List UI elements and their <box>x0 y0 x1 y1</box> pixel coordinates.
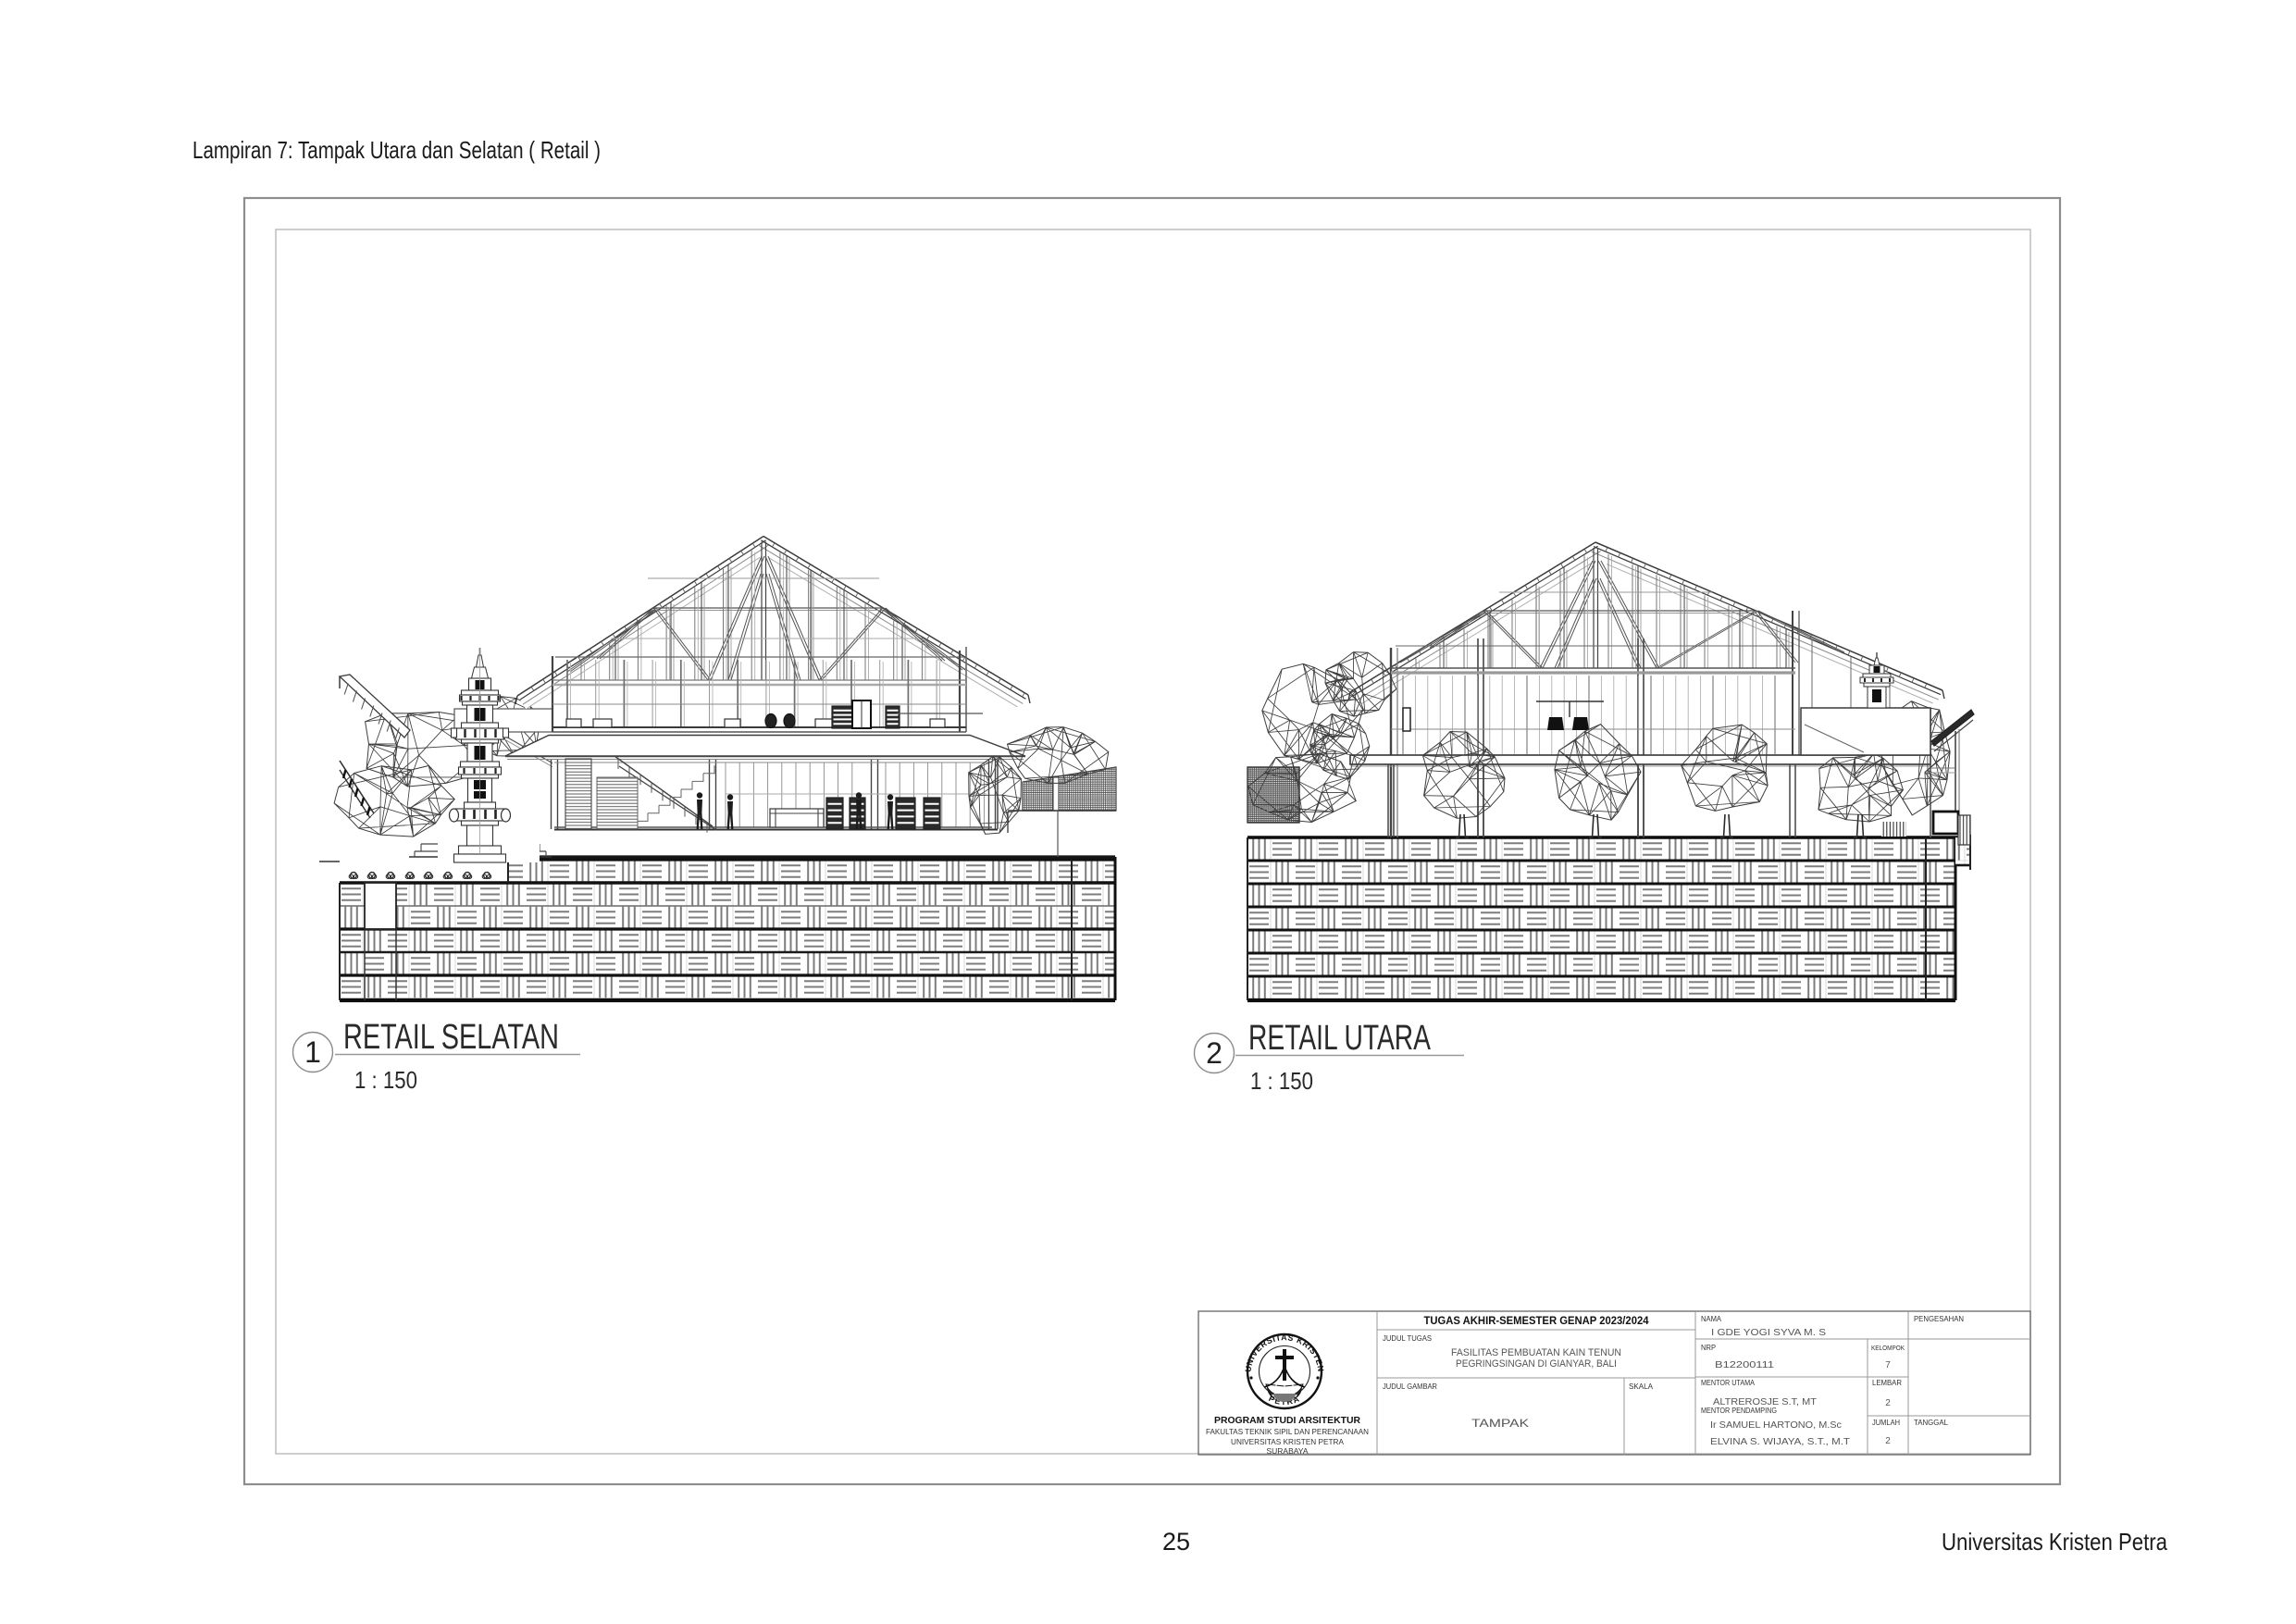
svg-text:TUGAS AKHIR-SEMESTER GENAP 202: TUGAS AKHIR-SEMESTER GENAP 2023/2024 <box>1424 1314 1649 1327</box>
svg-text:PROGRAM STUDI ARSITEKTUR: PROGRAM STUDI ARSITEKTUR <box>1214 1415 1360 1426</box>
svg-text:7: 7 <box>1885 1360 1891 1370</box>
svg-text:25: 25 <box>1162 1528 1190 1556</box>
svg-text:MENTOR UTAMA: MENTOR UTAMA <box>1701 1379 1756 1387</box>
svg-text:I GDE YOGI SYVA M. S: I GDE YOGI SYVA M. S <box>1711 1328 1826 1338</box>
svg-text:Universitas Kristen Petra: Universitas Kristen Petra <box>1942 1528 2167 1556</box>
svg-text:2: 2 <box>1885 1398 1891 1408</box>
svg-text:KELOMPOK: KELOMPOK <box>1871 1344 1905 1352</box>
svg-text:SKALA: SKALA <box>1629 1382 1654 1391</box>
svg-text:RETAIL UTARA: RETAIL UTARA <box>1248 1019 1431 1058</box>
svg-text:MENTOR PENDAMPING: MENTOR PENDAMPING <box>1701 1407 1777 1415</box>
svg-text:RETAIL SELATAN: RETAIL SELATAN <box>343 1018 559 1057</box>
svg-text:SURABAYA: SURABAYA <box>1267 1446 1309 1456</box>
svg-text:FAKULTAS TEKNIK SIPIL DAN PERE: FAKULTAS TEKNIK SIPIL DAN PERENCANAAN <box>1206 1427 1369 1436</box>
svg-text:1 : 150: 1 : 150 <box>354 1066 417 1094</box>
svg-text:PENGESAHAN: PENGESAHAN <box>1914 1315 1964 1323</box>
svg-text:Lampiran 7: Tampak Utara dan S: Lampiran 7: Tampak Utara dan Selatan ( R… <box>192 136 601 164</box>
svg-text:ELVINA S. WIJAYA, S.T., M.T: ELVINA S. WIJAYA, S.T., M.T <box>1710 1437 1850 1447</box>
svg-text:2: 2 <box>1206 1036 1222 1070</box>
svg-text:JUDUL GAMBAR: JUDUL GAMBAR <box>1383 1382 1437 1391</box>
svg-text:2: 2 <box>1885 1436 1891 1446</box>
svg-text:JUMLAH: JUMLAH <box>1872 1419 1900 1427</box>
svg-text:Ir SAMUEL HARTONO, M.Sc: Ir SAMUEL HARTONO, M.Sc <box>1710 1420 1842 1431</box>
svg-text:PEGRINGSINGAN DI GIANYAR, BALI: PEGRINGSINGAN DI GIANYAR, BALI <box>1456 1358 1617 1370</box>
svg-text:TAMPAK: TAMPAK <box>1471 1417 1529 1430</box>
svg-text:FASILITAS PEMBUATAN KAIN TENUN: FASILITAS PEMBUATAN KAIN TENUN <box>1451 1347 1621 1358</box>
svg-text:NAMA: NAMA <box>1701 1315 1722 1323</box>
svg-text:1 : 150: 1 : 150 <box>1250 1067 1313 1095</box>
svg-text:JUDUL TUGAS: JUDUL TUGAS <box>1383 1334 1432 1343</box>
svg-text:LEMBAR: LEMBAR <box>1872 1379 1902 1387</box>
svg-text:1: 1 <box>304 1035 321 1069</box>
svg-text:NRP: NRP <box>1701 1344 1716 1352</box>
svg-text:UNIVERSITAS KRISTEN PETRA: UNIVERSITAS KRISTEN PETRA <box>1231 1437 1344 1446</box>
svg-text:TANGGAL: TANGGAL <box>1914 1419 1949 1427</box>
svg-text:B12200111: B12200111 <box>1715 1360 1775 1370</box>
